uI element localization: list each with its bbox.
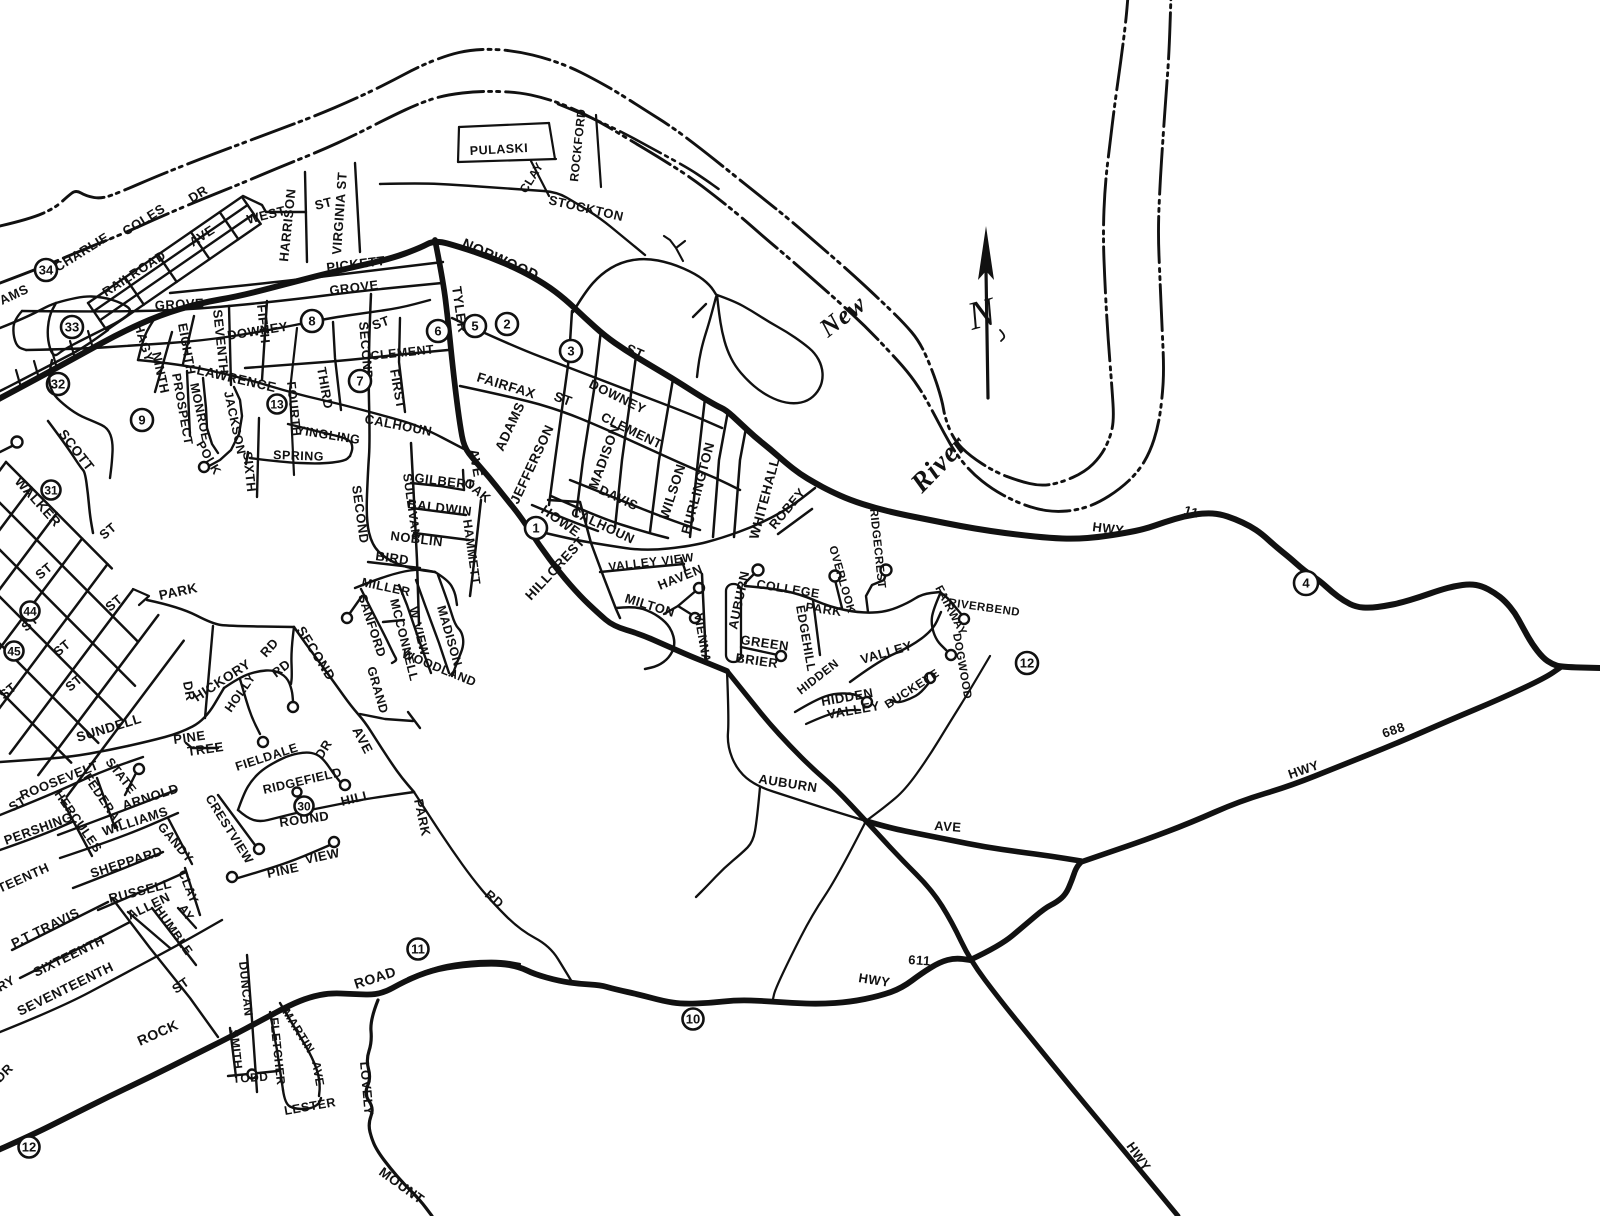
svg-text:FIRST: FIRST (387, 368, 409, 410)
svg-text:DUNCAN: DUNCAN (236, 961, 256, 1017)
svg-text:NOBLIN: NOBLIN (390, 528, 444, 549)
svg-text:SECOND: SECOND (349, 484, 372, 544)
svg-text:AMS: AMS (0, 281, 31, 307)
svg-text:1: 1 (532, 521, 539, 536)
svg-text:New: New (813, 289, 872, 344)
svg-text:AVE: AVE (349, 724, 376, 756)
svg-text:EIGHTH: EIGHTH (175, 322, 199, 376)
svg-text:GREEN: GREEN (740, 632, 790, 654)
svg-text:RD: RD (257, 635, 281, 660)
svg-text:30: 30 (297, 799, 311, 813)
svg-text:SPRING: SPRING (273, 448, 324, 464)
svg-text:AVE: AVE (934, 818, 962, 835)
svg-text:DR: DR (312, 737, 335, 762)
svg-text:AVE: AVE (186, 222, 217, 249)
svg-text:GRAND: GRAND (364, 665, 391, 715)
svg-text:2: 2 (503, 317, 510, 332)
svg-text:ST: ST (0, 679, 19, 702)
svg-text:MILTON: MILTON (623, 591, 677, 620)
svg-text:ROCKFORD: ROCKFORD (567, 108, 589, 182)
svg-text:SMITH: SMITH (227, 1029, 245, 1070)
svg-text:7: 7 (356, 374, 363, 389)
svg-text:CLEMENT: CLEMENT (370, 342, 435, 363)
svg-text:AY: AY (176, 902, 197, 924)
svg-text:STOCKTON: STOCKTON (547, 192, 625, 224)
svg-text:HAMMETT: HAMMETT (460, 518, 483, 585)
svg-text:PARK: PARK (805, 600, 843, 619)
svg-text:GROVE: GROVE (154, 295, 204, 313)
svg-text:RD: RD (269, 656, 294, 680)
svg-text:DR: DR (0, 1060, 16, 1085)
svg-text:JACKSON: JACKSON (221, 390, 248, 456)
svg-text:SANFORD: SANFORD (355, 593, 388, 659)
svg-text:SECOND: SECOND (293, 624, 338, 683)
svg-text:YINGLING: YINGLING (296, 423, 362, 447)
svg-text:PULASKI: PULASKI (469, 141, 528, 158)
svg-text:NORWOOD: NORWOOD (459, 236, 541, 284)
svg-text:VALLEY: VALLEY (859, 638, 914, 667)
svg-text:POLK: POLK (193, 439, 223, 478)
svg-text:TEENTH: TEENTH (0, 860, 51, 896)
svg-text:LOVELY: LOVELY (357, 1061, 377, 1116)
svg-text:44: 44 (23, 604, 37, 618)
svg-text:PINE: PINE (266, 860, 301, 881)
svg-text:13: 13 (270, 397, 284, 411)
svg-text:VIRGINIA ST: VIRGINIA ST (329, 171, 350, 255)
svg-text:8: 8 (308, 314, 315, 329)
svg-text:45: 45 (7, 644, 21, 658)
svg-text:11: 11 (411, 942, 425, 957)
svg-text:CLAY: CLAY (175, 868, 201, 906)
svg-text:611: 611 (908, 952, 931, 969)
svg-text:MADISON: MADISON (586, 423, 623, 491)
svg-text:COLLEGE: COLLEGE (756, 577, 821, 601)
svg-text:MADISON: MADISON (434, 604, 465, 668)
svg-text:SCOTT: SCOTT (56, 427, 98, 474)
svg-text:32: 32 (51, 377, 65, 392)
svg-text:6: 6 (434, 324, 441, 339)
svg-text:ROCK: ROCK (135, 1017, 181, 1049)
svg-text:34: 34 (39, 263, 54, 278)
svg-text:TODD: TODD (232, 1070, 269, 1086)
svg-text:ST: ST (96, 519, 119, 542)
svg-text:BUCKEYE: BUCKEYE (882, 666, 942, 712)
svg-text:RY: RY (0, 972, 18, 994)
svg-text:VALLEY: VALLEY (608, 554, 659, 574)
svg-text:VIEW: VIEW (304, 845, 342, 867)
svg-text:THIRD: THIRD (314, 366, 336, 410)
svg-text:12: 12 (22, 1140, 36, 1155)
svg-text:4: 4 (1302, 576, 1310, 591)
svg-text:AVE: AVE (466, 448, 486, 478)
svg-text:AVE: AVE (309, 1060, 327, 1087)
svg-text:33: 33 (65, 320, 79, 335)
svg-text:3: 3 (567, 344, 574, 359)
svg-text:NINTH: NINTH (149, 351, 172, 395)
svg-text:31: 31 (44, 483, 58, 497)
svg-text:CALHOUN: CALHOUN (363, 411, 433, 439)
svg-text:FLETCHER: FLETCHER (267, 1017, 288, 1086)
svg-text:ADAMS: ADAMS (492, 400, 528, 453)
svg-text:ST: ST (62, 671, 85, 694)
svg-text:ST: ST (50, 636, 73, 659)
svg-text:5: 5 (471, 319, 478, 334)
svg-text:12: 12 (1020, 656, 1034, 671)
svg-text:P.T TRAVIS: P.T TRAVIS (9, 905, 82, 951)
svg-text:ST: ST (313, 194, 334, 213)
svg-text:MOUNT: MOUNT (376, 1164, 427, 1207)
svg-text:BIRD: BIRD (375, 548, 411, 568)
svg-text:RD: RD (482, 887, 507, 911)
svg-text:HWY: HWY (858, 970, 892, 990)
svg-text:SEVENTEENTH: SEVENTEENTH (15, 959, 116, 1019)
svg-text:LESTER: LESTER (283, 1095, 337, 1118)
svg-text:CHARLIE: CHARLIE (52, 229, 112, 274)
svg-text:N: N (962, 288, 1003, 339)
svg-text:PARK: PARK (411, 798, 434, 838)
svg-text:ST: ST (370, 313, 392, 333)
svg-text:9: 9 (138, 413, 145, 428)
svg-text:AUBURN: AUBURN (758, 771, 819, 795)
svg-text:DR: DR (186, 182, 211, 205)
svg-text:CRESTVIEW: CRESTVIEW (202, 792, 256, 866)
svg-text:HARRISON: HARRISON (276, 188, 299, 263)
svg-text:COLES: COLES (120, 201, 168, 239)
svg-text:10: 10 (686, 1012, 700, 1027)
svg-text:PARK: PARK (158, 580, 200, 603)
svg-text:RIDGECREST: RIDGECREST (867, 508, 887, 589)
